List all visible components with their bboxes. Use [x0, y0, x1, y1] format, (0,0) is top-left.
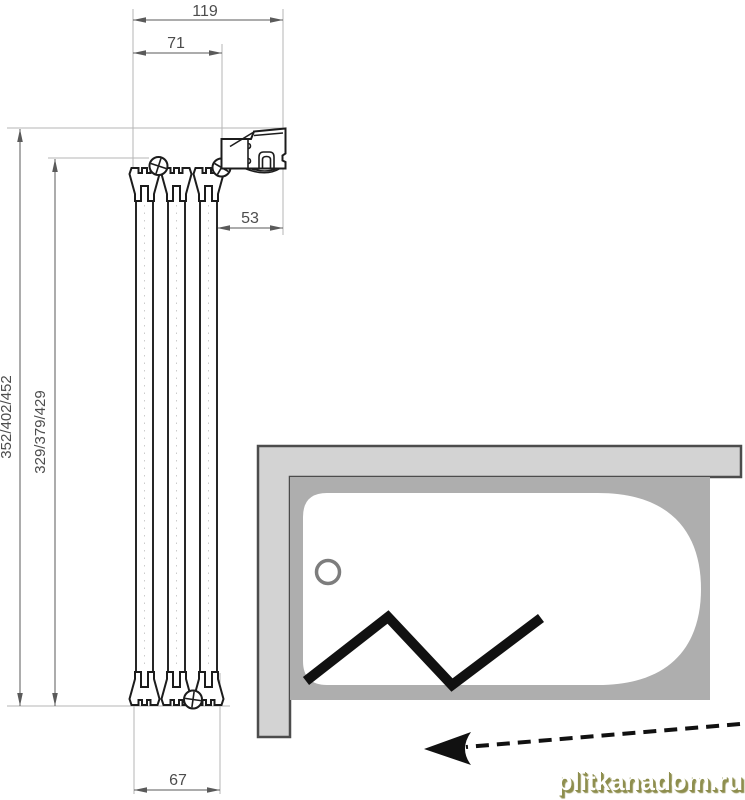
dim-label-53: 53: [241, 210, 259, 227]
dashed-direction-line: [466, 724, 740, 747]
arrow-up-icon: [52, 159, 58, 172]
panel-bottom-profiles: [130, 672, 224, 705]
panel-top-profiles: [130, 168, 224, 201]
wall-profile-section: [222, 129, 286, 173]
arrow-left-icon: [133, 50, 146, 56]
dim-label-67: 67: [169, 772, 187, 789]
panel1-bottom-profile: [130, 672, 160, 705]
bathtub-plan: [258, 446, 741, 765]
technical-drawing-svg: 119 71 53 67 352/402/452 329/379/429: [0, 0, 745, 800]
arrow-right-icon: [270, 225, 283, 231]
arrow-right-icon: [209, 50, 222, 56]
screw-bottom: [184, 690, 202, 708]
folding-panels-section: [130, 156, 233, 709]
wall-profile-body: [222, 129, 286, 169]
arrow-up-icon: [17, 129, 23, 142]
dim-label-height-outer: 352/402/452: [0, 375, 15, 458]
dimension-height-inner: 329/379/429: [32, 159, 58, 706]
arrow-right-icon: [207, 787, 220, 793]
hinge-screws: [148, 156, 232, 709]
panel-strips: [136, 200, 217, 673]
dimension-71: 71: [133, 35, 222, 56]
panel2-top-profile: [162, 168, 192, 201]
arrow-left-icon: [134, 787, 147, 793]
opening-direction-arrow: [424, 724, 740, 765]
screw-top-left: [148, 156, 168, 176]
arrow-left-icon: [133, 17, 146, 23]
arrow-right-icon: [270, 17, 283, 23]
dim-label-height-inner: 329/379/429: [32, 390, 49, 473]
panel-centerlines: [145, 205, 209, 668]
arrow-left-icon: [217, 225, 230, 231]
dimension-53: 53: [217, 210, 283, 231]
dimension-67: 67: [134, 772, 220, 793]
dimension-119: 119: [133, 3, 283, 23]
bathtub-interior: [303, 493, 701, 685]
dimension-height-outer: 352/402/452: [0, 129, 23, 706]
dim-label-119: 119: [192, 3, 218, 20]
drawing-canvas: 119 71 53 67 352/402/452 329/379/429: [0, 0, 745, 800]
watermark: plitkanadom.ru: [557, 766, 743, 797]
drain-icon: [317, 561, 340, 584]
arrow-down-icon: [17, 693, 23, 706]
arrow-down-icon: [52, 693, 58, 706]
direction-arrowhead-icon: [424, 732, 471, 765]
dim-label-71: 71: [167, 35, 185, 52]
